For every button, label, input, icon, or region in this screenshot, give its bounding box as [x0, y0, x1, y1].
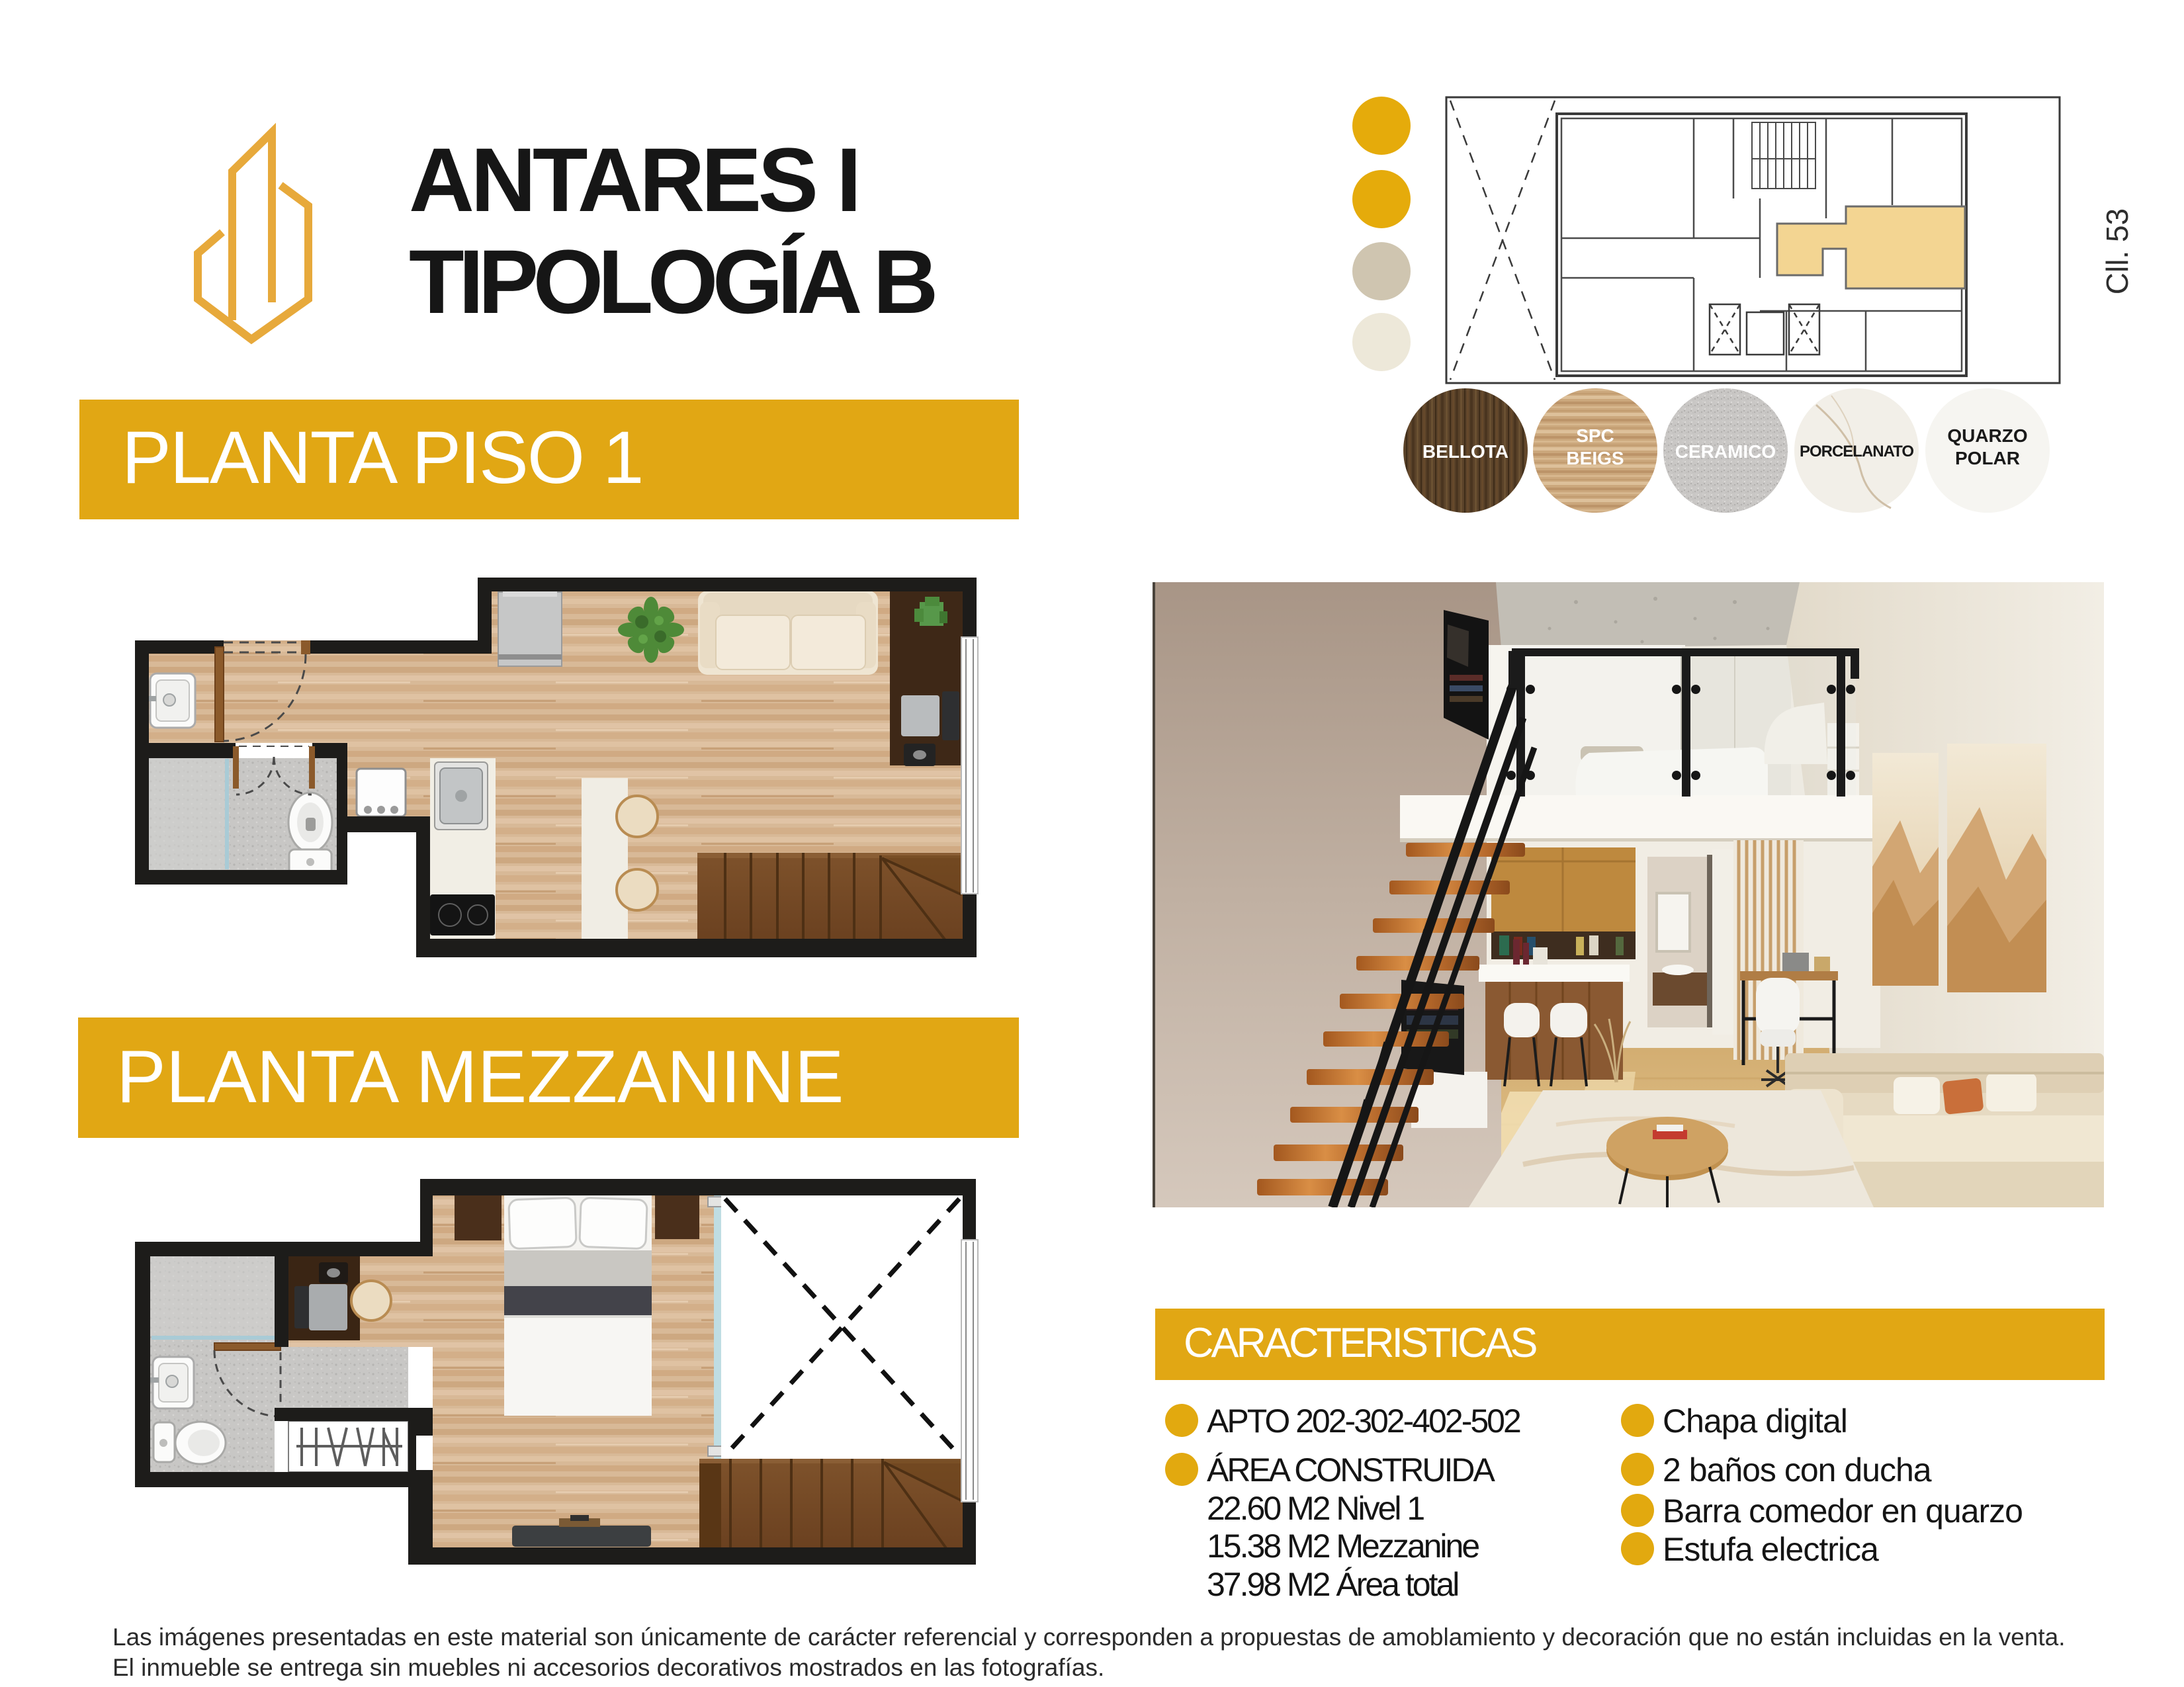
svg-text:POLAR: POLAR	[1955, 448, 2020, 468]
svg-text:2 baños con ducha: 2 baños con ducha	[1663, 1451, 1932, 1489]
svg-text:37.98 M2 Área total: 37.98 M2 Área total	[1207, 1566, 1458, 1603]
svg-text:Cll. 53: Cll. 53	[2100, 208, 2134, 294]
svg-text:CERAMICO: CERAMICO	[1675, 441, 1776, 462]
svg-text:Barra comedor en quarzo: Barra comedor en quarzo	[1663, 1492, 2023, 1530]
svg-text:BEIGS: BEIGS	[1566, 448, 1624, 468]
svg-text:15.38 M2 Mezzanine: 15.38 M2 Mezzanine	[1207, 1528, 1479, 1565]
svg-text:PORCELANATO: PORCELANATO	[1800, 443, 1913, 460]
svg-text:APTO 202-302-402-502: APTO 202-302-402-502	[1207, 1403, 1520, 1440]
svg-text:22.60 M2 Nivel 1: 22.60 M2 Nivel 1	[1207, 1490, 1424, 1527]
svg-text:BELLOTA: BELLOTA	[1422, 441, 1508, 462]
svg-text:Chapa digital: Chapa digital	[1663, 1403, 1847, 1440]
svg-text:QUARZO: QUARZO	[1947, 425, 2027, 446]
svg-text:Estufa electrica: Estufa electrica	[1663, 1531, 1879, 1568]
svg-text:SPC: SPC	[1576, 425, 1614, 446]
svg-text:ÁREA CONSTRUIDA: ÁREA CONSTRUIDA	[1207, 1451, 1496, 1489]
